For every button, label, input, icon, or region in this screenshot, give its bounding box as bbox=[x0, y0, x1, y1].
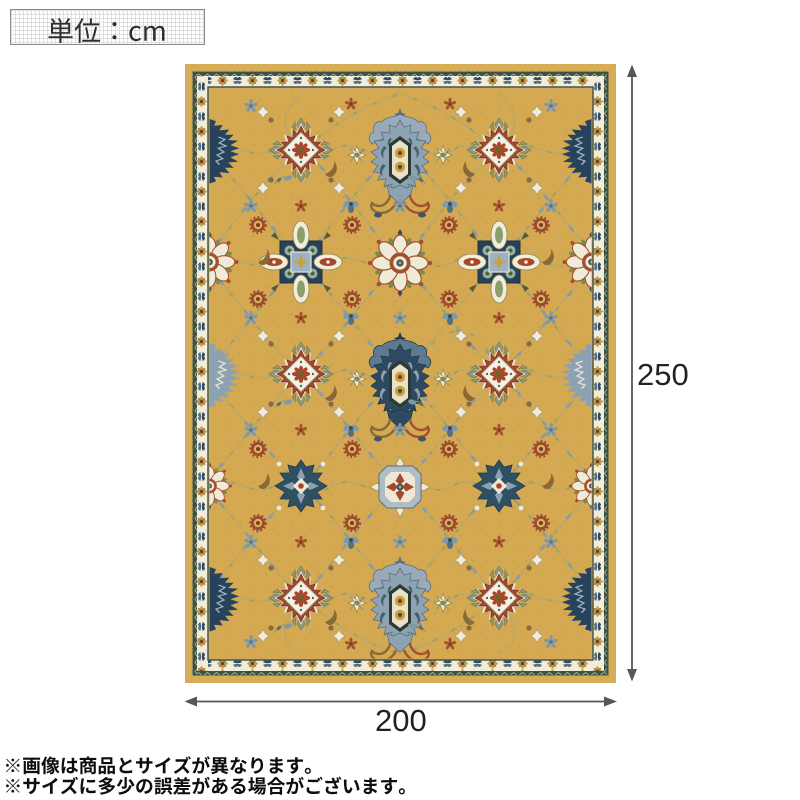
svg-text:250: 250 bbox=[637, 357, 689, 392]
svg-text:200: 200 bbox=[375, 703, 427, 738]
